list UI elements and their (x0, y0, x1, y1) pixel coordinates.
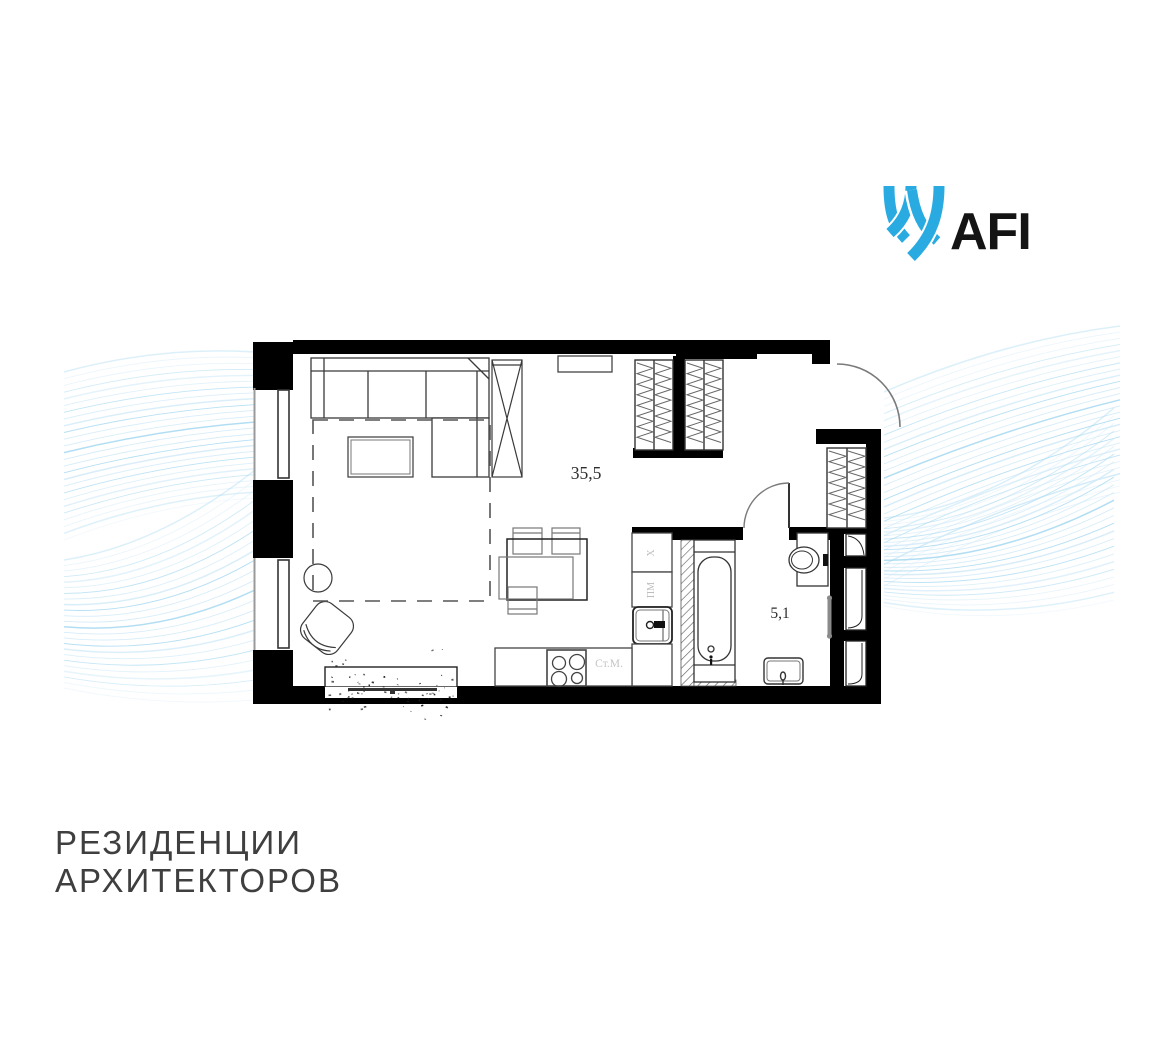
armchair (296, 597, 358, 659)
room-area-bathroom: 5,1 (770, 605, 789, 622)
coffee-table (348, 437, 413, 477)
bathtub (694, 540, 735, 682)
project-title-line2: АРХИТЕКТОРОВ (55, 862, 342, 900)
decor-waves-left (64, 351, 255, 702)
room-area-living: 35,5 (571, 463, 602, 483)
label-fridge: Х (646, 549, 657, 557)
bathroom-door (744, 483, 789, 528)
towel-rail (827, 595, 832, 638)
toilet (789, 533, 828, 586)
project-title: РЕЗИДЕНЦИИ АРХИТЕКТОРОВ (55, 824, 342, 900)
hall-shelf (558, 356, 612, 372)
bathroom-sink (764, 658, 803, 685)
label-washing-machine: Ст.М. (595, 658, 623, 670)
decor-waves-right (884, 326, 1120, 616)
side-table (304, 564, 332, 592)
label-dishwasher: ПМ (646, 582, 657, 598)
page: AFI (0, 0, 1150, 1040)
dining-set (499, 528, 587, 614)
wardrobe-x (492, 360, 522, 477)
bathroom (681, 533, 832, 686)
hatched-partition (681, 540, 694, 686)
tv-console (325, 649, 457, 720)
project-title-line1: РЕЗИДЕНЦИИ (55, 824, 342, 862)
